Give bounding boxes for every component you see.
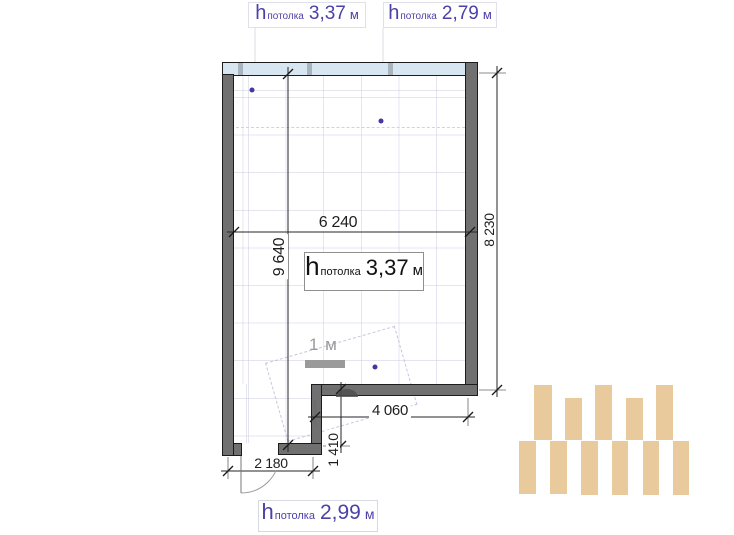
h-symbol: h [388, 3, 399, 23]
dim-text-room-height-right: 8 230 [482, 210, 496, 250]
unit: м [365, 507, 375, 521]
label-leader-lines [255, 28, 383, 62]
scale-bar-label: 1 м [309, 335, 338, 355]
window-mullion [238, 63, 243, 75]
logo-bar [643, 441, 659, 495]
logo-bar [673, 441, 689, 495]
dim-text-step-width: 4 060 [369, 403, 411, 418]
floor-plan-canvas: 1 м [0, 0, 734, 535]
h-symbol: h [262, 501, 274, 523]
unit: м [483, 8, 492, 21]
logo-bar [581, 441, 598, 495]
window-mullion [388, 63, 393, 75]
height-value: 3,37 [366, 257, 409, 279]
height-value: 2,99 [320, 502, 361, 523]
h-symbol: h [305, 253, 319, 279]
wall-right [465, 62, 478, 396]
wall-door-jamb-left [233, 443, 242, 456]
ceiling-height-label-room: h потолка 3,37 м [304, 252, 424, 291]
wall-door-jamb-right [278, 443, 322, 455]
h-symbol: h [255, 3, 266, 23]
subscript: потолка [267, 12, 304, 22]
dim-text-door-wall-width: 2 180 [251, 456, 291, 470]
height-value: 3,37 [309, 4, 346, 23]
ceiling-height-label-top-right: h потолка 2,79 м [383, 2, 497, 28]
logo-bar [626, 398, 643, 440]
light-point-dot [373, 365, 378, 370]
unit: м [350, 8, 359, 21]
ceiling-height-label-bottom: h потолка 2,99 м [258, 500, 378, 532]
scale-bar [305, 360, 345, 368]
logo-bar [656, 385, 673, 440]
logo-bar [550, 441, 567, 494]
logo-bar [565, 398, 582, 440]
logo-bar [534, 385, 552, 440]
unit: м [413, 263, 423, 278]
window-mullion [307, 63, 312, 75]
ceiling-height-label-top-left: h потолка 3,37 м [248, 2, 366, 28]
wall-step-horizontal [311, 384, 478, 396]
subscript: потолка [275, 511, 315, 522]
subscript: потолка [321, 267, 361, 278]
glazed-window-wall [222, 62, 478, 76]
logo-bar [612, 441, 628, 495]
light-point-dot [250, 88, 255, 93]
light-point-dot [379, 119, 384, 124]
ceiling-zone-dashed-line [236, 127, 465, 128]
subscript: потолка [400, 12, 437, 22]
logo-bar [519, 441, 536, 494]
wall-left [222, 74, 234, 456]
dim-text-room-height-left: 9 640 [272, 235, 288, 280]
height-value: 2,79 [442, 4, 479, 23]
dim-text-step-height: 1 410 [326, 430, 340, 470]
logo-bar [595, 385, 612, 440]
dim-text-room-width: 6 240 [316, 215, 361, 231]
